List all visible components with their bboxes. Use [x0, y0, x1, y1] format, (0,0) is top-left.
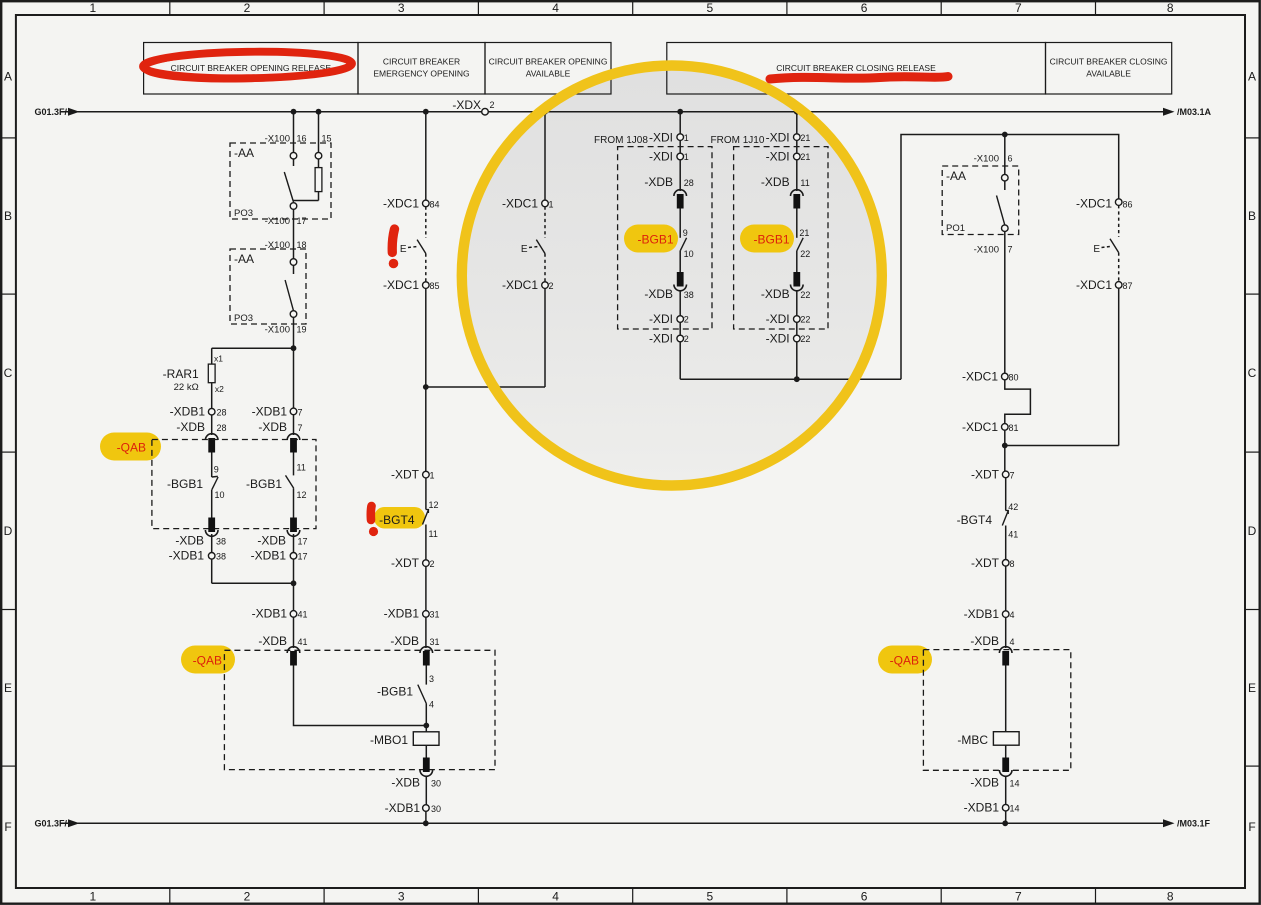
svg-text:-XDB: -XDB: [970, 634, 999, 648]
svg-text:87: 87: [1123, 281, 1133, 291]
svg-text:22 kΩ: 22 kΩ: [174, 382, 199, 393]
svg-text:-XDB: -XDB: [761, 175, 790, 189]
svg-text:-XDC1: -XDC1: [962, 420, 998, 434]
svg-text:-X100: -X100: [265, 240, 290, 251]
svg-text:-BGT4: -BGT4: [957, 513, 993, 527]
svg-text:28: 28: [217, 408, 227, 418]
svg-text:-XDB: -XDB: [257, 534, 286, 548]
svg-text:-XDC1: -XDC1: [1076, 197, 1112, 211]
svg-text:6: 6: [861, 890, 868, 904]
svg-text:4: 4: [1010, 637, 1015, 647]
svg-text:7: 7: [1015, 890, 1022, 904]
svg-text:PO3: PO3: [234, 208, 253, 219]
svg-text:-XDB: -XDB: [644, 175, 673, 189]
svg-text:/M03.1F: /M03.1F: [1177, 819, 1211, 829]
svg-text:31: 31: [430, 610, 440, 620]
svg-text:-XDB1: -XDB1: [170, 405, 206, 419]
svg-text:-XDC1: -XDC1: [502, 278, 538, 292]
svg-text:1: 1: [684, 133, 689, 143]
svg-text:B: B: [1248, 209, 1256, 223]
svg-text:-X100: -X100: [974, 245, 999, 256]
svg-text:2: 2: [244, 890, 251, 904]
svg-text:2: 2: [430, 559, 435, 569]
svg-text:18: 18: [297, 240, 307, 250]
svg-text:5: 5: [706, 890, 713, 904]
svg-text:6: 6: [1008, 154, 1013, 164]
svg-text:41: 41: [298, 610, 308, 620]
svg-text:7: 7: [1015, 1, 1022, 15]
svg-text:-AA: -AA: [234, 252, 254, 266]
svg-text:-XDB: -XDB: [175, 534, 204, 548]
svg-text:-XDI: -XDI: [649, 150, 673, 164]
svg-text:-XDI: -XDI: [649, 332, 673, 346]
svg-text:-XDI: -XDI: [766, 312, 790, 326]
svg-text:PO1: PO1: [946, 223, 965, 234]
svg-text:F: F: [4, 820, 11, 834]
svg-text:-XDT: -XDT: [971, 468, 1000, 482]
svg-text:7: 7: [298, 423, 303, 433]
svg-text:E: E: [400, 244, 407, 255]
svg-text:-XDB: -XDB: [391, 776, 420, 790]
svg-text:CIRCUIT BREAKER OPENING: CIRCUIT BREAKER OPENING: [489, 57, 608, 67]
svg-text:28: 28: [684, 178, 694, 188]
svg-text:3: 3: [398, 1, 405, 15]
svg-text:-QAB: -QAB: [117, 441, 146, 455]
svg-text:-XDB1: -XDB1: [964, 801, 1000, 815]
svg-text:-BGB1: -BGB1: [246, 477, 282, 491]
svg-text:16: 16: [297, 134, 307, 144]
svg-text:-MBO1: -MBO1: [370, 733, 408, 747]
svg-text:1: 1: [684, 152, 689, 162]
svg-text:A: A: [4, 69, 12, 83]
svg-text:21: 21: [800, 152, 810, 162]
svg-text:12: 12: [429, 500, 439, 510]
svg-text:10: 10: [215, 490, 225, 500]
svg-text:-XDX: -XDX: [452, 98, 481, 112]
svg-text:1: 1: [549, 200, 554, 210]
svg-text:84: 84: [430, 200, 440, 210]
svg-text:-XDB: -XDB: [644, 287, 673, 301]
svg-text:4: 4: [429, 700, 434, 710]
svg-text:E: E: [1248, 681, 1256, 695]
svg-text:2: 2: [684, 315, 689, 325]
svg-text:85: 85: [430, 281, 440, 291]
svg-text:-QAB: -QAB: [193, 654, 222, 668]
svg-text:15: 15: [322, 134, 332, 144]
svg-text:22: 22: [800, 334, 810, 344]
svg-text:-XDB: -XDB: [390, 634, 419, 648]
svg-text:-XDC1: -XDC1: [383, 278, 419, 292]
svg-text:-XDB: -XDB: [761, 287, 790, 301]
svg-text:x2: x2: [215, 384, 224, 394]
svg-text:-XDC1: -XDC1: [1076, 278, 1112, 292]
svg-text:E: E: [521, 244, 528, 255]
svg-text:/M03.1A: /M03.1A: [1177, 107, 1212, 117]
svg-text:7: 7: [1010, 471, 1015, 481]
svg-text:9: 9: [683, 228, 688, 238]
svg-text:-XDB: -XDB: [970, 776, 999, 790]
svg-text:F: F: [1248, 820, 1255, 834]
svg-text:-AA: -AA: [234, 146, 254, 160]
svg-text:1: 1: [430, 471, 435, 481]
svg-text:2: 2: [490, 100, 495, 110]
svg-text:-XDB: -XDB: [176, 420, 205, 434]
svg-text:41: 41: [298, 637, 308, 647]
svg-text:-XDT: -XDT: [391, 468, 420, 482]
svg-text:-XDI: -XDI: [649, 312, 673, 326]
svg-text:2: 2: [244, 1, 251, 15]
svg-text:14: 14: [1010, 804, 1020, 814]
svg-text:-AA: -AA: [946, 169, 966, 183]
svg-text:-BGB1: -BGB1: [637, 233, 673, 247]
svg-text:-XDI: -XDI: [766, 131, 790, 145]
svg-text:8: 8: [1167, 1, 1174, 15]
svg-text:22: 22: [800, 249, 810, 259]
svg-text:-X100: -X100: [265, 216, 290, 227]
svg-text:41: 41: [1008, 530, 1018, 540]
svg-text:AVAILABLE: AVAILABLE: [526, 69, 571, 79]
svg-text:7: 7: [1008, 245, 1013, 255]
svg-text:1: 1: [90, 890, 97, 904]
svg-text:-X100: -X100: [265, 325, 290, 336]
svg-text:EMERGENCY OPENING: EMERGENCY OPENING: [373, 69, 469, 79]
svg-text:19: 19: [297, 325, 307, 335]
svg-text:-BGB1: -BGB1: [167, 477, 203, 491]
svg-text:5: 5: [706, 1, 713, 15]
svg-text:AVAILABLE: AVAILABLE: [1086, 69, 1131, 79]
svg-text:9: 9: [214, 465, 219, 475]
svg-text:E: E: [4, 681, 12, 695]
svg-text:21: 21: [800, 133, 810, 143]
svg-text:-BGB1: -BGB1: [377, 685, 413, 699]
svg-text:14: 14: [1010, 779, 1020, 789]
svg-text:21: 21: [799, 228, 809, 238]
svg-text:86: 86: [1123, 200, 1133, 210]
svg-text:C: C: [1248, 366, 1257, 380]
svg-text:10: 10: [684, 249, 694, 259]
svg-text:11: 11: [297, 463, 306, 473]
svg-text:30: 30: [431, 804, 441, 814]
svg-text:6: 6: [861, 1, 868, 15]
svg-text:-X100: -X100: [974, 154, 999, 165]
svg-text:A: A: [1248, 69, 1256, 83]
svg-text:-XDC1: -XDC1: [383, 197, 419, 211]
svg-text:30: 30: [431, 779, 441, 789]
svg-text:FROM 1J10: FROM 1J10: [711, 135, 765, 146]
svg-text:CIRCUIT BREAKER CLOSING RELEAS: CIRCUIT BREAKER CLOSING RELEASE: [776, 63, 936, 73]
svg-text:-XDB1: -XDB1: [384, 607, 420, 621]
svg-text:-X100: -X100: [265, 134, 290, 145]
svg-text:-XDB1: -XDB1: [252, 405, 288, 419]
svg-text:-XDB1: -XDB1: [964, 607, 1000, 621]
svg-text:4: 4: [552, 1, 559, 15]
svg-text:-XDC1: -XDC1: [962, 370, 998, 384]
svg-text:80: 80: [1009, 373, 1019, 383]
svg-text:38: 38: [216, 537, 226, 547]
svg-text:2: 2: [549, 281, 554, 291]
svg-text:-XDB: -XDB: [258, 420, 287, 434]
svg-text:1: 1: [90, 1, 97, 15]
svg-text:-XDI: -XDI: [766, 150, 790, 164]
svg-text:31: 31: [430, 637, 440, 647]
svg-text:-XDT: -XDT: [391, 556, 420, 570]
svg-text:42: 42: [1008, 502, 1018, 512]
svg-text:-QAB: -QAB: [890, 654, 919, 668]
svg-text:11: 11: [429, 529, 438, 539]
svg-text:3: 3: [429, 674, 434, 684]
svg-text:B: B: [4, 209, 12, 223]
svg-text:-BGT4: -BGT4: [379, 513, 415, 527]
svg-text:11: 11: [800, 178, 809, 188]
svg-text:17: 17: [298, 537, 308, 547]
svg-text:D: D: [4, 524, 13, 538]
svg-text:12: 12: [297, 490, 307, 500]
svg-text:81: 81: [1009, 423, 1019, 433]
svg-text:-XDT: -XDT: [971, 556, 1000, 570]
svg-text:-XDB: -XDB: [258, 634, 287, 648]
svg-text:38: 38: [216, 552, 226, 562]
svg-text:-XDB1: -XDB1: [385, 801, 421, 815]
svg-text:-BGB1: -BGB1: [753, 233, 789, 247]
svg-text:17: 17: [297, 216, 307, 226]
svg-text:-XDB1: -XDB1: [252, 607, 288, 621]
svg-text:4: 4: [1010, 610, 1015, 620]
svg-text:CIRCUIT BREAKER: CIRCUIT BREAKER: [383, 57, 460, 67]
svg-text:-XDI: -XDI: [766, 332, 790, 346]
svg-text:-XDI: -XDI: [649, 131, 673, 145]
svg-text:2: 2: [684, 334, 689, 344]
svg-text:-MBC: -MBC: [957, 733, 988, 747]
svg-text:CIRCUIT BREAKER CLOSING: CIRCUIT BREAKER CLOSING: [1050, 57, 1168, 67]
svg-text:38: 38: [684, 290, 694, 300]
svg-text:-XDB1: -XDB1: [169, 549, 205, 563]
svg-text:17: 17: [298, 552, 308, 562]
svg-text:E: E: [1093, 244, 1100, 255]
svg-text:D: D: [1248, 524, 1257, 538]
svg-text:22: 22: [800, 290, 810, 300]
svg-text:8: 8: [1010, 559, 1015, 569]
svg-text:4: 4: [552, 890, 559, 904]
svg-text:8: 8: [1167, 890, 1174, 904]
svg-text:3: 3: [398, 890, 405, 904]
svg-text:28: 28: [217, 423, 227, 433]
svg-text:-XDB1: -XDB1: [251, 549, 287, 563]
svg-text:FROM 1J08: FROM 1J08: [594, 135, 648, 146]
svg-text:-XDC1: -XDC1: [502, 197, 538, 211]
svg-text:PO3: PO3: [234, 313, 253, 324]
svg-text:-RAR1: -RAR1: [163, 367, 199, 381]
svg-text:7: 7: [298, 408, 303, 418]
svg-text:C: C: [4, 366, 13, 380]
svg-text:x1: x1: [214, 354, 223, 364]
svg-text:22: 22: [800, 315, 810, 325]
